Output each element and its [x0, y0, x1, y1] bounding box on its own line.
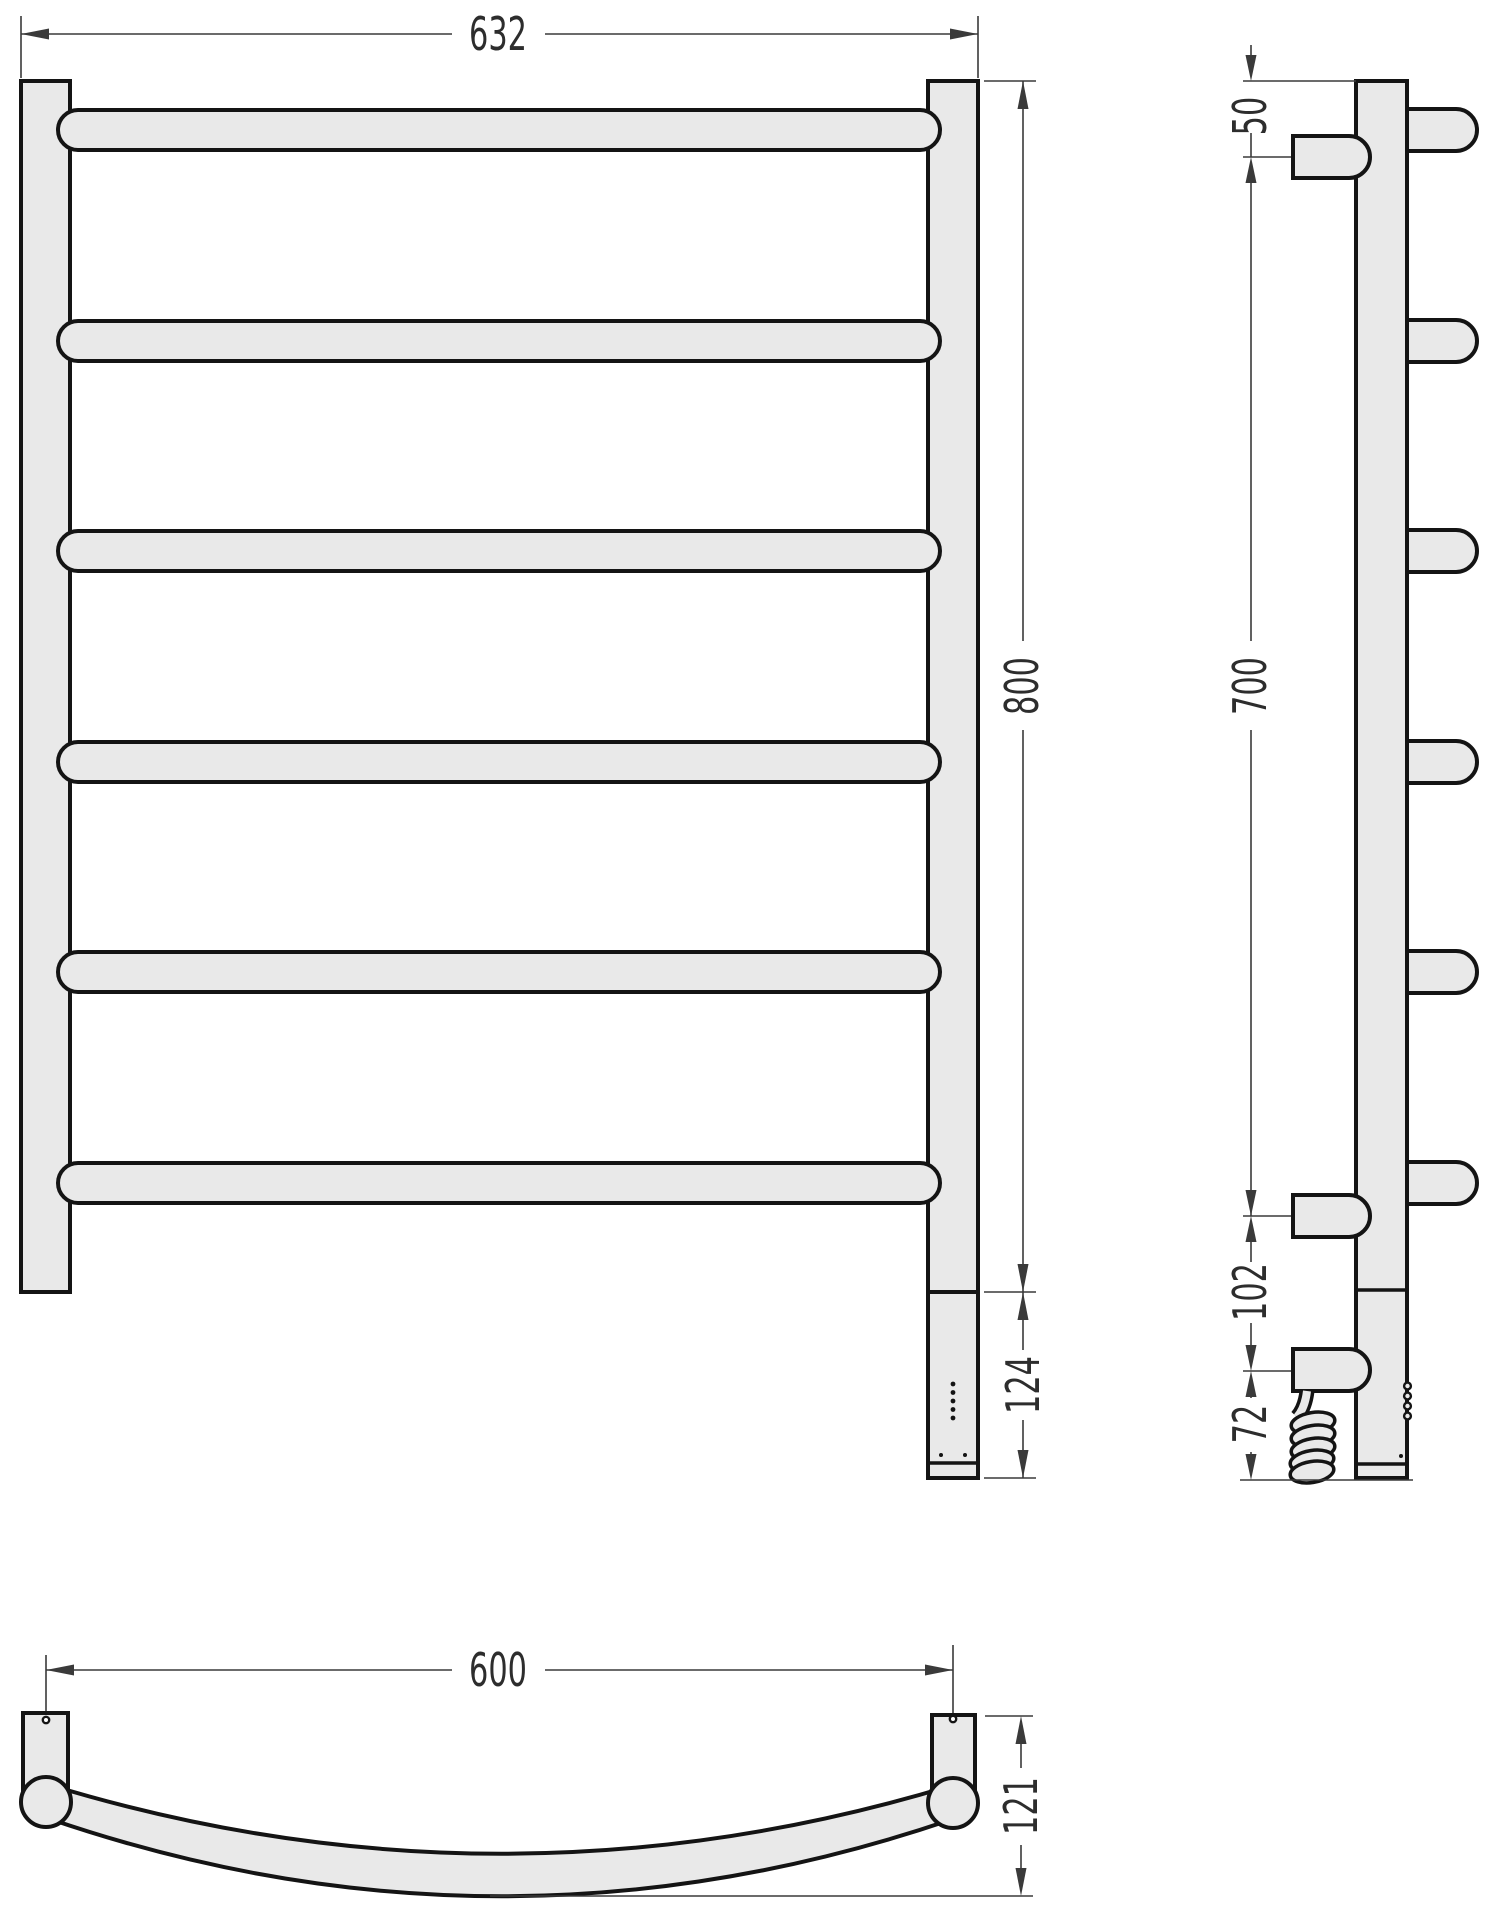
label-side-top-offset: 50 — [1227, 97, 1273, 136]
rung-5 — [58, 952, 940, 992]
bottom-right-screw-hole — [950, 1716, 956, 1722]
rung-2 — [58, 321, 940, 361]
side-cap-3 — [1404, 530, 1477, 572]
label-side-rung-span: 700 — [1227, 657, 1273, 715]
label-front-width: 632 — [469, 11, 527, 57]
label-front-bottom-section: 124 — [1000, 1356, 1046, 1414]
towel-rail-drawing: 632 800 124 50 700 102 72 600 121 — [0, 0, 1499, 1920]
side-cap-4 — [1404, 741, 1477, 783]
bottom-left-rail-end — [21, 1777, 71, 1827]
front-left-rail — [21, 81, 70, 1292]
label-side-cable-drop: 72 — [1227, 1405, 1273, 1444]
bottom-curved-rung — [50, 1785, 950, 1896]
rung-4 — [58, 742, 940, 782]
front-right-rail — [928, 81, 978, 1292]
bottom-view — [21, 1645, 1033, 1896]
side-cap-2 — [1404, 320, 1477, 362]
front-view — [21, 16, 1036, 1478]
side-cap-5 — [1404, 951, 1477, 993]
drawing-layer — [0, 0, 1499, 1920]
side-connector-cable — [1293, 1349, 1370, 1391]
label-side-connector-gap: 102 — [1227, 1263, 1273, 1321]
rung-3 — [58, 531, 940, 571]
rung-1 — [58, 110, 940, 150]
label-bottom-mount-spacing: 600 — [469, 1647, 527, 1693]
bottom-right-rail-end — [928, 1778, 978, 1828]
side-connector-top — [1293, 136, 1370, 178]
power-cable-coil — [1289, 1391, 1337, 1486]
side-connector-lower — [1293, 1195, 1370, 1237]
side-cap-1 — [1404, 109, 1477, 151]
rung-6 — [58, 1163, 940, 1203]
side-rail — [1356, 81, 1407, 1478]
label-bottom-depth: 121 — [998, 1777, 1044, 1835]
side-cap-6 — [1404, 1162, 1477, 1204]
label-front-height: 800 — [999, 657, 1045, 715]
bottom-left-screw-hole — [43, 1717, 49, 1723]
